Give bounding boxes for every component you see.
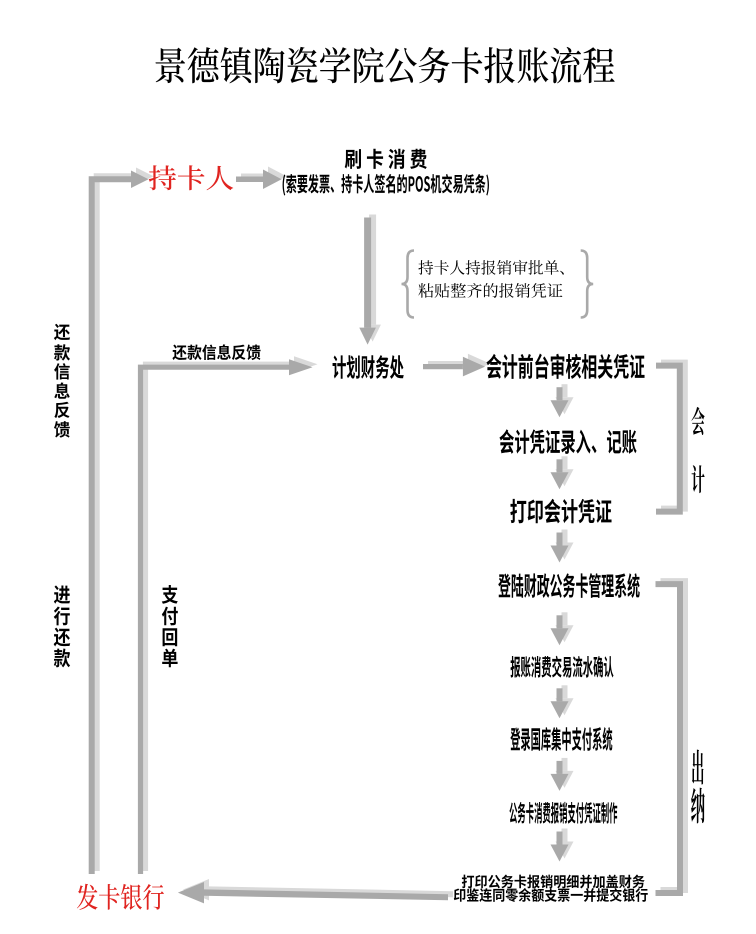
svg-text:粘贴整齐的报销凭证: 粘贴整齐的报销凭证 [418,278,563,301]
svg-text:会计凭证录入、记账: 会计凭证录入、记账 [499,423,637,460]
svg-text:持卡人持报销审批单、: 持卡人持报销审批单、 [418,255,575,278]
svg-text:款: 款 [54,643,71,672]
svg-text:公务卡消费报销支付凭证制作: 公务卡消费报销支付凭证制作 [509,795,617,829]
svg-text:持卡人: 持卡人 [148,157,234,196]
svg-text:登录国库集中支付系统: 登录国库集中支付系统 [510,721,612,757]
svg-text:馈: 馈 [54,415,71,441]
svg-text:纳: 纳 [691,778,705,832]
svg-text:打印会计凭证: 打印会计凭证 [510,492,612,529]
svg-text:计划财务处: 计划财务处 [332,349,404,385]
svg-text:报账消费交易流水确认: 报账消费交易流水确认 [510,649,614,683]
svg-text:计: 计 [691,456,705,500]
svg-text:发卡银行: 发卡银行 [76,877,165,917]
svg-text:会: 会 [691,398,705,442]
svg-text:会计前台审核相关凭证: 会计前台审核相关凭证 [486,345,645,384]
svg-text:景德镇陶瓷学院公务卡报账流程: 景德镇陶瓷学院公务卡报账流程 [154,36,616,92]
svg-text:登陆财政公务卡管理系统: 登陆财政公务卡管理系统 [498,566,640,603]
svg-text:(索要发票、持卡人签名的POS机交易凭条): (索要发票、持卡人签名的POS机交易凭条) [282,167,490,197]
svg-text:单: 单 [161,643,178,672]
svg-text:还款信息反馈: 还款信息反馈 [172,339,261,363]
svg-text:印鉴连同零余额支票一并提交银行: 印鉴连同零余额支票一并提交银行 [453,884,648,905]
